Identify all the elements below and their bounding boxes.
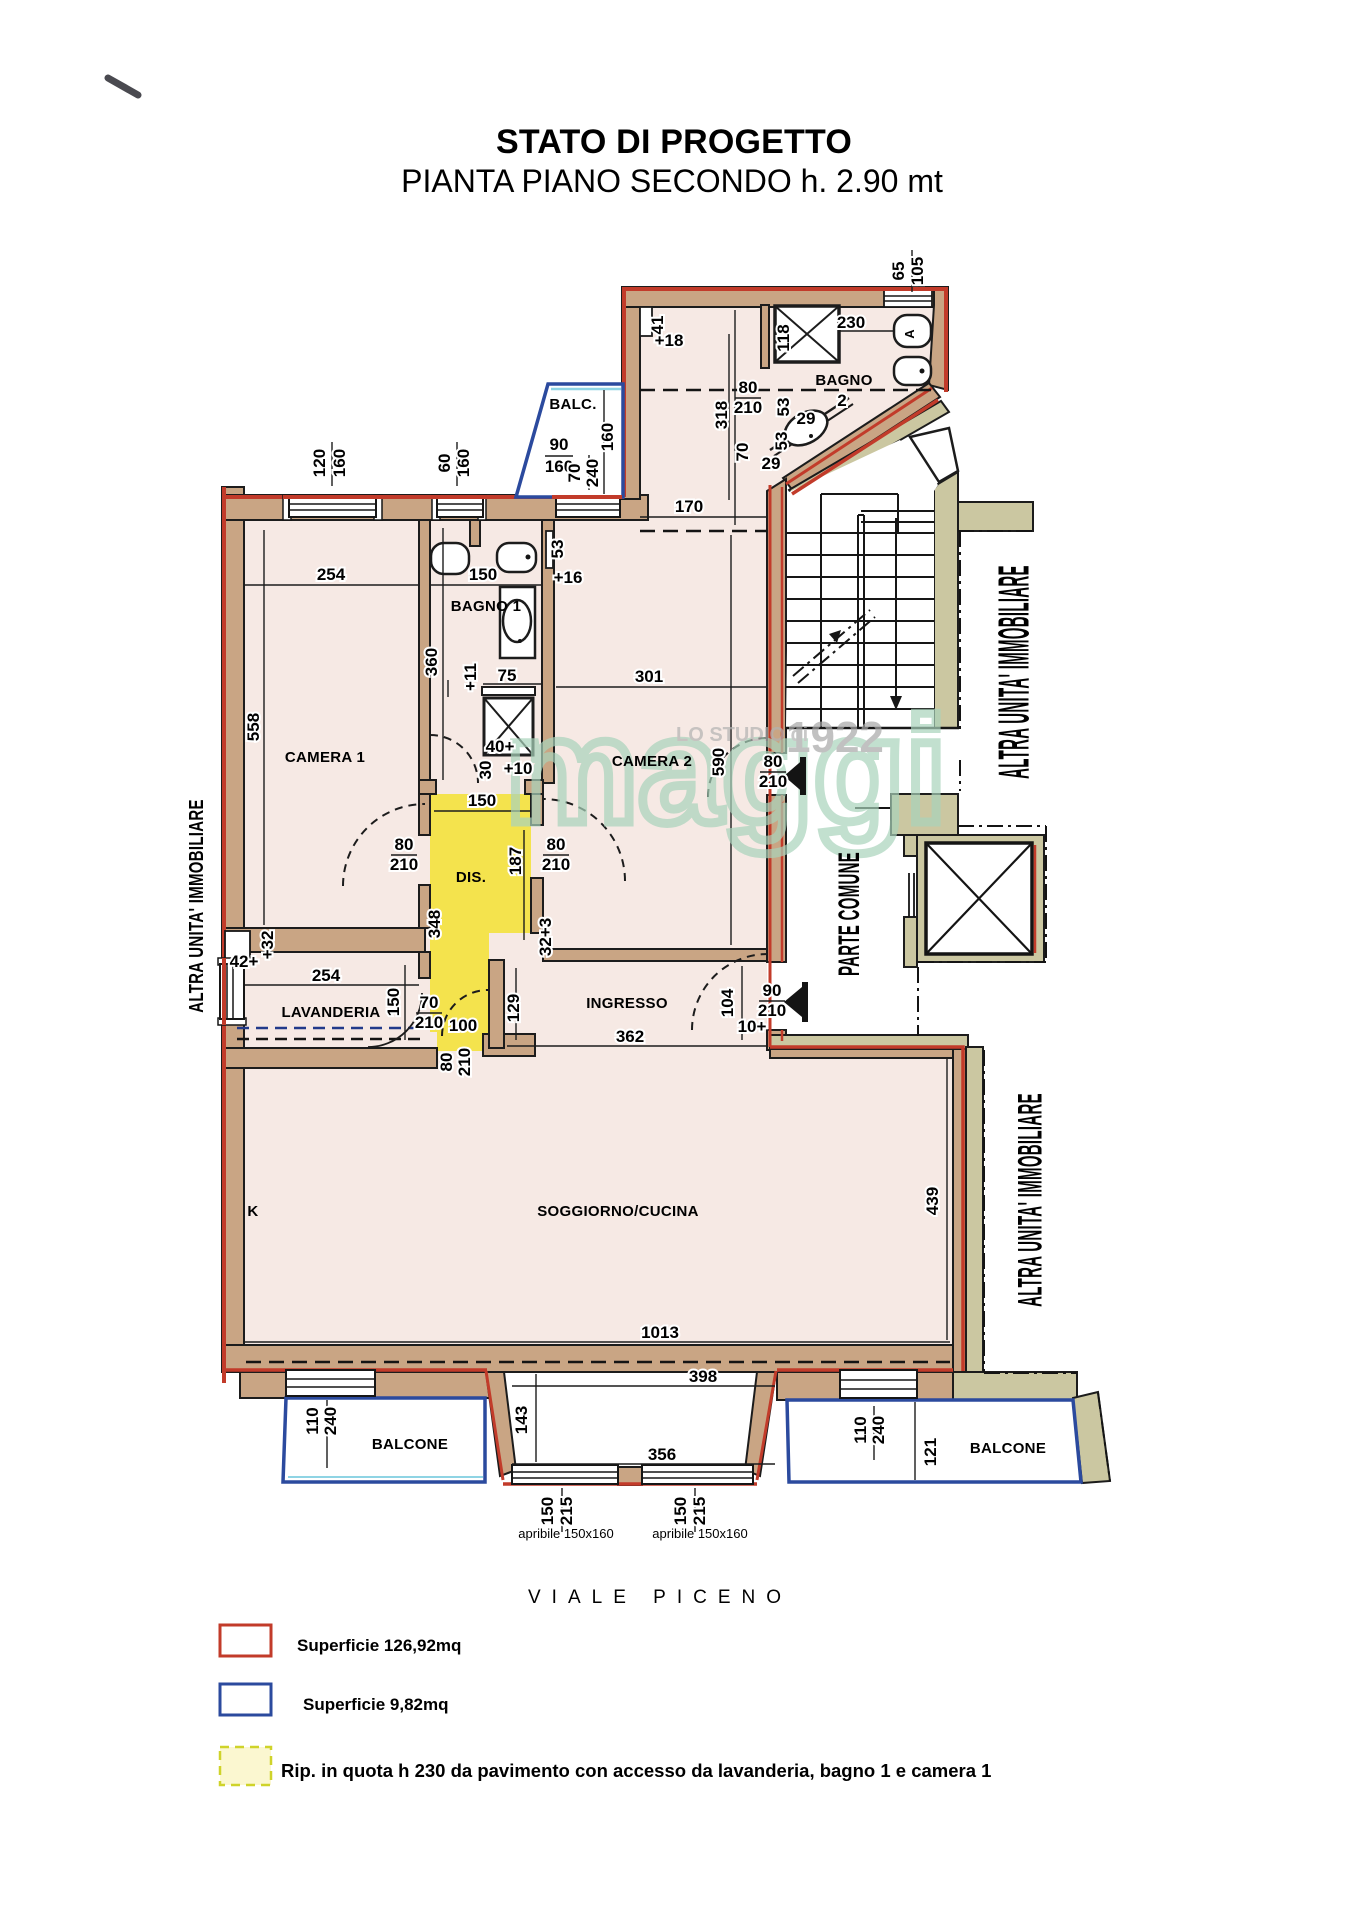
svg-text:254: 254	[317, 565, 346, 584]
svg-text:VIALE PICENO: VIALE PICENO	[528, 1587, 792, 1608]
svg-text:160: 160	[454, 449, 473, 477]
svg-text:160: 160	[598, 423, 617, 451]
svg-text:32+3: 32+3	[536, 918, 555, 956]
svg-text:70: 70	[420, 993, 439, 1012]
svg-text:CAMERA 1: CAMERA 1	[285, 749, 365, 766]
svg-text:439: 439	[923, 1187, 942, 1215]
svg-text:160: 160	[330, 449, 349, 477]
svg-text:170: 170	[675, 497, 703, 516]
svg-text:356: 356	[648, 1445, 676, 1464]
svg-text:301: 301	[635, 667, 663, 686]
svg-text:Superficie 9,82mq: Superficie 9,82mq	[303, 1695, 449, 1714]
svg-text:210: 210	[390, 855, 418, 874]
svg-text:30: 30	[476, 761, 495, 780]
svg-text:SOGGIORNO/CUCINA: SOGGIORNO/CUCINA	[537, 1203, 698, 1220]
svg-text:360: 360	[422, 648, 441, 676]
svg-text:42+: 42+	[230, 952, 259, 971]
svg-text:210: 210	[455, 1048, 474, 1076]
svg-text:215: 215	[690, 1497, 709, 1525]
svg-text:29: 29	[797, 409, 816, 428]
svg-text:29: 29	[762, 454, 781, 473]
svg-text:CAMERA 2: CAMERA 2	[612, 753, 692, 770]
svg-text:+32: +32	[258, 931, 277, 960]
svg-text:187: 187	[506, 847, 525, 875]
svg-text:70: 70	[565, 464, 584, 483]
svg-text:ALTRA UNITA' IMMOBILIARE: ALTRA UNITA' IMMOBILIARE	[990, 565, 1038, 779]
svg-text:210: 210	[759, 772, 787, 791]
svg-text:362: 362	[616, 1027, 644, 1046]
svg-text:INGRESSO: INGRESSO	[586, 995, 668, 1012]
svg-text:BALCONE: BALCONE	[372, 1436, 448, 1453]
svg-text:+11: +11	[461, 663, 480, 691]
svg-text:LAVANDERIA: LAVANDERIA	[281, 1004, 380, 1021]
svg-text:apribile 150x160: apribile 150x160	[518, 1526, 613, 1541]
svg-text:215: 215	[557, 1497, 576, 1525]
svg-text:A: A	[902, 329, 917, 339]
svg-text:398: 398	[689, 1367, 717, 1386]
svg-text:210: 210	[542, 855, 570, 874]
svg-text:104: 104	[718, 988, 737, 1017]
svg-text:110: 110	[303, 1407, 322, 1434]
svg-text:118: 118	[774, 324, 793, 351]
svg-text:ALTRA UNITA' IMMOBILIARE: ALTRA UNITA' IMMOBILIARE	[1011, 1093, 1050, 1307]
svg-text:348: 348	[425, 910, 444, 938]
svg-text:PARTE COMUNE: PARTE COMUNE	[834, 852, 867, 976]
svg-text:210: 210	[734, 398, 762, 417]
svg-text:53: 53	[548, 540, 567, 559]
svg-text:150: 150	[468, 791, 496, 810]
svg-text:2: 2	[837, 391, 846, 410]
svg-text:apribile 150x160: apribile 150x160	[652, 1526, 747, 1541]
svg-text:STATO DI PROGETTO: STATO DI PROGETTO	[496, 123, 852, 161]
svg-text:590: 590	[709, 748, 728, 776]
svg-text:121: 121	[921, 1438, 940, 1466]
svg-text:120: 120	[310, 449, 329, 477]
svg-text:65: 65	[889, 262, 908, 281]
svg-text:254: 254	[312, 966, 341, 985]
svg-text:230: 230	[837, 313, 865, 332]
svg-text:80: 80	[395, 835, 414, 854]
svg-text:Rip. in quota h 230 da pavimen: Rip. in quota h 230 da pavimento con acc…	[281, 1760, 991, 1781]
svg-text:75: 75	[498, 666, 517, 685]
svg-text:53: 53	[772, 432, 791, 451]
svg-text:80: 80	[739, 378, 758, 397]
svg-text:558: 558	[244, 713, 263, 741]
svg-text:DIS.: DIS.	[456, 869, 486, 886]
svg-text:1922: 1922	[786, 713, 884, 762]
svg-text:150: 150	[538, 1497, 557, 1525]
svg-text:53: 53	[774, 398, 793, 417]
svg-text:90: 90	[763, 981, 782, 1000]
svg-text:PIANTA PIANO SECONDO h. 2.90 m: PIANTA PIANO SECONDO h. 2.90 mt	[401, 163, 943, 199]
svg-text:BALCONE: BALCONE	[970, 1440, 1046, 1457]
svg-text:150: 150	[469, 565, 497, 584]
svg-text:318: 318	[712, 401, 731, 429]
svg-text:BALC.: BALC.	[549, 396, 596, 413]
svg-text:70: 70	[733, 443, 752, 462]
svg-text:240: 240	[869, 1416, 888, 1444]
svg-text:80: 80	[547, 835, 566, 854]
svg-text:K: K	[247, 1203, 258, 1220]
svg-text:Superficie 126,92mq: Superficie 126,92mq	[297, 1636, 461, 1655]
svg-text:+16: +16	[554, 568, 583, 587]
svg-text:240: 240	[583, 459, 602, 487]
svg-text:BAGNO: BAGNO	[815, 372, 872, 389]
svg-text:80: 80	[764, 752, 783, 771]
svg-text:150: 150	[671, 1497, 690, 1525]
svg-text:210: 210	[415, 1013, 443, 1032]
svg-text:+10: +10	[504, 759, 533, 778]
svg-text:1013: 1013	[641, 1323, 679, 1342]
svg-text:ALTRA UNITA' IMMOBILIARE: ALTRA UNITA' IMMOBILIARE	[185, 799, 208, 1013]
svg-text:90: 90	[550, 435, 569, 454]
svg-text:60: 60	[435, 454, 454, 473]
svg-text:240: 240	[321, 1407, 340, 1435]
svg-text:100: 100	[449, 1016, 477, 1035]
svg-text:150: 150	[384, 988, 403, 1016]
svg-text:BAGNO 1: BAGNO 1	[451, 598, 521, 615]
svg-text:41: 41	[648, 316, 667, 335]
svg-text:143: 143	[512, 1406, 531, 1434]
svg-text:105: 105	[908, 257, 927, 285]
svg-text:40+: 40+	[486, 737, 515, 756]
svg-text:110: 110	[851, 1416, 870, 1443]
svg-text:129: 129	[504, 994, 523, 1022]
svg-text:210: 210	[758, 1001, 786, 1020]
svg-text:80: 80	[437, 1053, 456, 1072]
